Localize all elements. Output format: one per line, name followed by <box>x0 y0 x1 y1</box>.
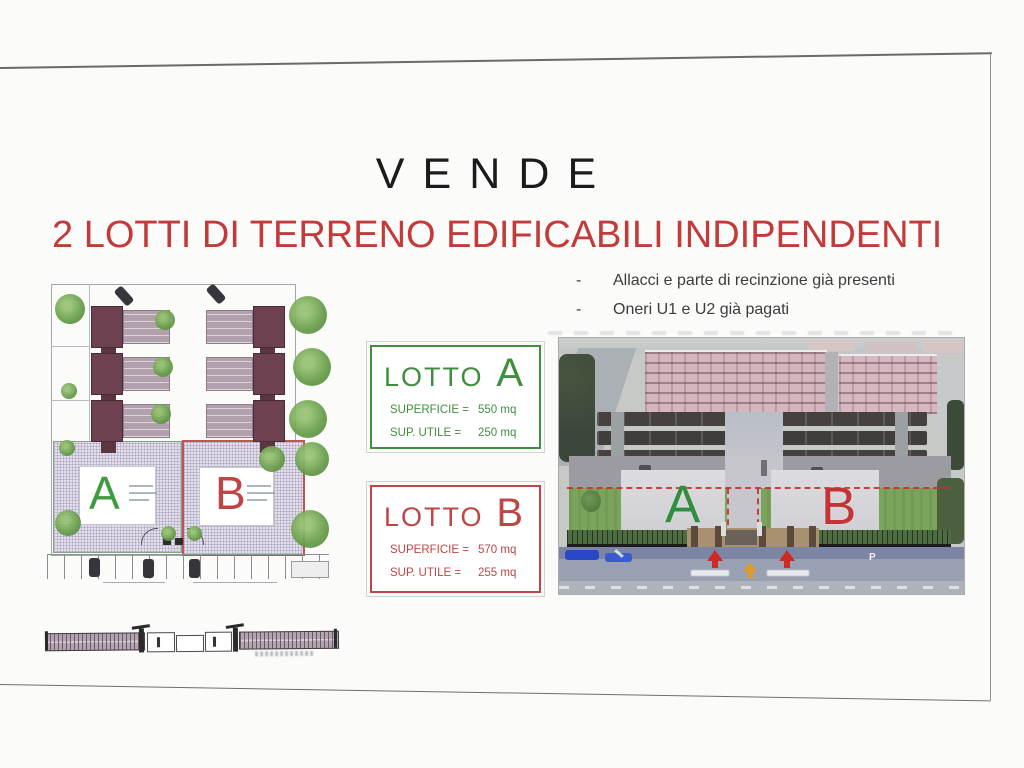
lot-b-info-box: LOTTO B SUPERFICIE = 570 mq SUP. UTILE =… <box>370 485 541 593</box>
bullet-marker: - <box>576 295 613 324</box>
page-right-edge <box>990 52 991 700</box>
plan-building-roof-dark <box>91 400 123 442</box>
gate-panel <box>205 632 232 652</box>
superficie-value: 570 mq <box>478 544 516 556</box>
superficie-label: SUPERFICIE = <box>390 544 478 556</box>
photo-wall-pillar <box>787 526 794 548</box>
photo-gate-post <box>757 522 762 536</box>
site-plan-divider-line <box>51 400 89 401</box>
plan-utility-box <box>291 561 329 578</box>
photo-apartment-building <box>645 350 827 414</box>
photo-wall-pillar <box>691 526 698 548</box>
fence-end-post <box>45 631 48 650</box>
entrance-arrow-icon <box>743 562 757 572</box>
lot-b-letter: B <box>496 495 523 531</box>
tree-icon <box>291 510 329 548</box>
photo-fence-hedge <box>817 530 951 547</box>
car-icon <box>143 559 154 578</box>
photo-entrance-gate <box>725 530 757 545</box>
plan-lot-a-label: A <box>89 470 120 516</box>
photo-fence-hedge <box>567 530 689 547</box>
tree-icon <box>289 296 327 334</box>
access-b-label <box>767 570 809 576</box>
plan-annotation-text <box>247 499 267 501</box>
plan-annotation-text <box>129 492 157 494</box>
gate-door-mark <box>213 637 216 647</box>
fence-end-post <box>334 629 337 648</box>
photo-lane-markings <box>559 586 964 589</box>
sup-utile-label: SUP. UTILE = <box>390 427 478 439</box>
lot-b-title-row: LOTTO B <box>372 487 539 533</box>
plan-building-roof-dark <box>253 353 285 395</box>
plan-annotation-text <box>129 485 153 487</box>
tree-icon <box>581 490 601 512</box>
fence-post <box>233 628 238 652</box>
aerial-photo: A B P <box>558 337 965 595</box>
superficie-label: SUPERFICIE = <box>390 404 478 416</box>
tree-icon <box>289 400 327 438</box>
photo-trees <box>559 354 595 462</box>
site-plan: A B <box>45 280 341 592</box>
plan-building-stair-block <box>101 442 116 453</box>
sup-utile-label: SUP. UTILE = <box>390 567 478 579</box>
sup-utile-value: 250 mq <box>478 427 516 439</box>
tree-icon <box>161 526 176 541</box>
scanned-flyer: { "page": { "title": "VENDE", "heading":… <box>0 0 1024 768</box>
tree-icon <box>55 510 81 536</box>
photo-driveway <box>727 456 761 534</box>
photo-far-building <box>865 342 917 353</box>
tree-icon <box>55 294 85 324</box>
photo-gate-post <box>721 522 726 536</box>
fence-elevation-drawing <box>45 615 337 670</box>
parking-letter: P <box>869 552 876 563</box>
plan-building-roof-light <box>206 404 253 438</box>
plan-building-roof-light <box>206 310 253 344</box>
fence-post <box>139 628 144 652</box>
access-b-arrow-icon <box>779 550 795 561</box>
plan-building-roof-dark <box>253 400 285 442</box>
gate-door-mark <box>157 637 160 647</box>
tree-icon <box>187 526 202 541</box>
plan-building-roof-dark <box>253 306 285 348</box>
page-top-edge <box>0 52 992 69</box>
photo-apartment-building <box>839 354 937 414</box>
photo-far-building <box>923 340 963 353</box>
plan-building-duplex <box>91 398 183 456</box>
scan-artifact <box>548 331 963 335</box>
plan-building-roof-light <box>206 357 253 391</box>
tree-icon <box>293 348 331 386</box>
plan-sidewalk-line <box>103 582 165 583</box>
lot-b-superficie-row: SUPERFICIE = 570 mq <box>372 544 539 556</box>
car-icon <box>89 558 100 577</box>
lot-a-title-row: LOTTO A <box>372 347 539 393</box>
tree-icon <box>61 383 77 399</box>
bullet-text: Allacci e parte di recinzione già presen… <box>613 266 895 295</box>
fence-segment <box>239 631 339 650</box>
tree-icon <box>59 440 75 456</box>
bullet-item: - Oneri U1 e U2 già pagati <box>576 295 895 324</box>
gate-panel <box>176 635 204 652</box>
gate-panel <box>147 632 175 652</box>
access-a-label <box>691 570 729 576</box>
elevation-caption-text <box>255 651 315 657</box>
car-icon <box>565 550 599 560</box>
lot-a-letter: A <box>496 355 523 391</box>
plan-annotation-text <box>129 499 149 501</box>
tree-icon <box>151 404 171 424</box>
page-title: VENDE <box>0 150 990 199</box>
access-a-arrow-icon <box>707 550 723 561</box>
photo-road <box>825 352 838 412</box>
lot-a-title: LOTTO <box>384 362 484 393</box>
superficie-value: 550 mq <box>478 404 516 416</box>
site-plan-divider-line <box>51 346 89 347</box>
tree-icon <box>259 446 285 472</box>
main-heading: 2 LOTTI DI TERRENO EDIFICABILI INDIPENDE… <box>52 214 962 257</box>
tree-icon <box>155 310 175 330</box>
car-icon <box>189 559 200 578</box>
lot-a-sup-utile-row: SUP. UTILE = 250 mq <box>372 427 539 439</box>
fence-segment <box>45 632 145 651</box>
tree-icon <box>295 442 329 476</box>
photo-lot-a-label: A <box>665 478 700 531</box>
plan-building-roof-dark <box>91 353 123 395</box>
tree-icon <box>153 357 173 377</box>
page-bottom-edge <box>0 684 991 701</box>
lot-a-info-box: LOTTO A SUPERFICIE = 550 mq SUP. UTILE =… <box>370 345 541 449</box>
photo-wall-pillar <box>809 526 816 548</box>
bullet-text: Oneri U1 e U2 già pagati <box>613 295 789 324</box>
plan-sidewalk-line <box>193 582 277 583</box>
lot-a-superficie-row: SUPERFICIE = 550 mq <box>372 404 539 416</box>
plan-building-roof-dark <box>91 306 123 348</box>
plan-gate-post <box>175 538 183 545</box>
sup-utile-value: 255 mq <box>478 567 516 579</box>
plan-annotation-text <box>247 492 275 494</box>
photo-lot-b-label: B <box>821 480 856 533</box>
bullet-item: - Allacci e parte di recinzione già pres… <box>576 266 895 295</box>
plan-annotation-text <box>247 485 271 487</box>
plan-lot-b-label: B <box>215 470 246 516</box>
bullet-list: - Allacci e parte di recinzione già pres… <box>576 266 895 324</box>
lot-b-sup-utile-row: SUP. UTILE = 255 mq <box>372 567 539 579</box>
site-plan-divider-line <box>89 284 90 450</box>
bullet-marker: - <box>576 266 613 295</box>
lot-b-title: LOTTO <box>384 502 484 533</box>
